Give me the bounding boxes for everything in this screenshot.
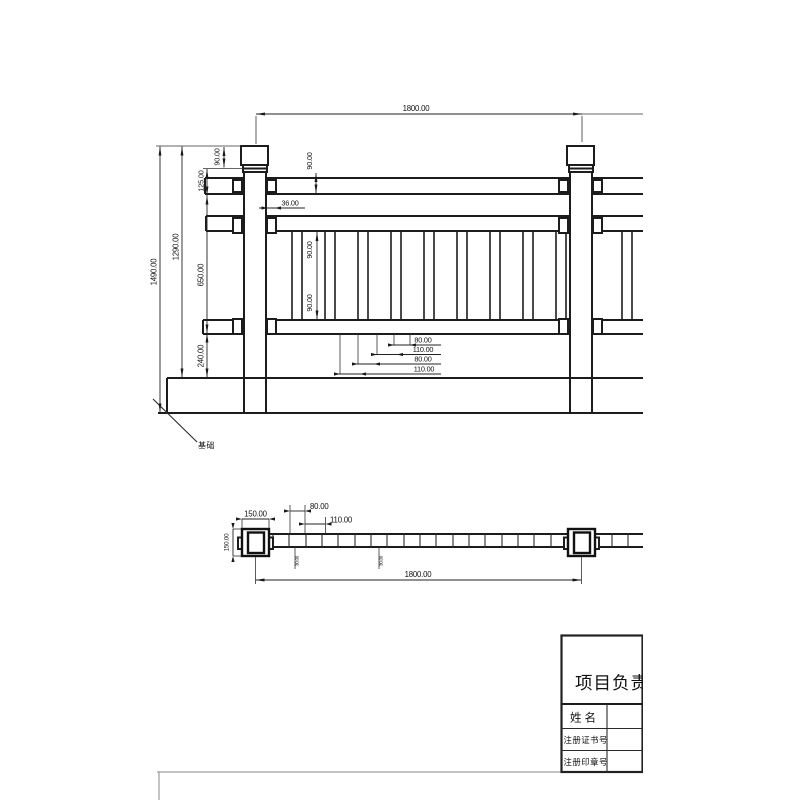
plan-post-left — [238, 529, 273, 556]
post-left — [241, 146, 268, 413]
dim-upper-height: 1290.00 — [172, 233, 181, 261]
dim-cap-to-rail: 125.00 — [197, 170, 206, 191]
dim-baluster-2: 30.00 — [379, 555, 384, 566]
dim-post-width: 150.00 — [244, 510, 268, 519]
plan-post-right — [564, 529, 599, 556]
post-right — [567, 146, 594, 413]
plan-view: 150.00 150.00 80.00 110.00 30.00 30.00 — [224, 502, 644, 584]
dim-total-height: 1490.00 — [150, 258, 159, 286]
dim-post-depth: 150.00 — [224, 533, 231, 551]
dim-gap: 80.00 — [310, 502, 329, 511]
dim-span-top: 1800.00 — [403, 104, 431, 113]
title-row-cert-label: 注册证书号 — [564, 735, 608, 745]
dim-handrail: 90.00 — [305, 152, 314, 169]
title-row-seal-label: 注册印章号 — [564, 757, 608, 767]
elevation-view: 基础 1800.00 1490.00 1290.00 90.00 125.00 … — [150, 104, 644, 450]
dim-offset: 36.00 — [281, 199, 298, 208]
dim-plan-span: 1800.00 — [405, 570, 433, 579]
title-row-name-label: 姓名 — [570, 711, 599, 725]
dim-panel-upper: 90.00 — [305, 241, 314, 258]
dim-cap: 90.00 — [213, 148, 222, 165]
dim-b-gap1: 80.00 — [414, 336, 431, 345]
cad-drawing-canvas: 基础 1800.00 1490.00 1290.00 90.00 125.00 … — [0, 0, 800, 800]
dim-panel: 650.00 — [197, 263, 206, 287]
dim-pitch: 110.00 — [330, 516, 353, 525]
title-block-header: 项目负责人 — [575, 673, 668, 693]
foundation-label: 基础 — [198, 440, 215, 450]
dim-b-pitch1: 110.00 — [413, 345, 434, 354]
dim-baluster-1: 30.00 — [295, 555, 300, 566]
dim-base: 240.00 — [197, 344, 206, 368]
dim-panel-lower: 90.00 — [305, 294, 314, 311]
drawing-svg: 基础 1800.00 1490.00 1290.00 90.00 125.00 … — [0, 0, 800, 800]
dim-b-gap2: 80.00 — [414, 355, 431, 364]
title-block: 项目负责人 姓名 注册证书号 注册印章号 — [157, 636, 668, 800]
dim-b-pitch2: 110.00 — [414, 365, 435, 374]
plan-dimensions: 150.00 150.00 80.00 110.00 30.00 30.00 — [224, 502, 582, 584]
